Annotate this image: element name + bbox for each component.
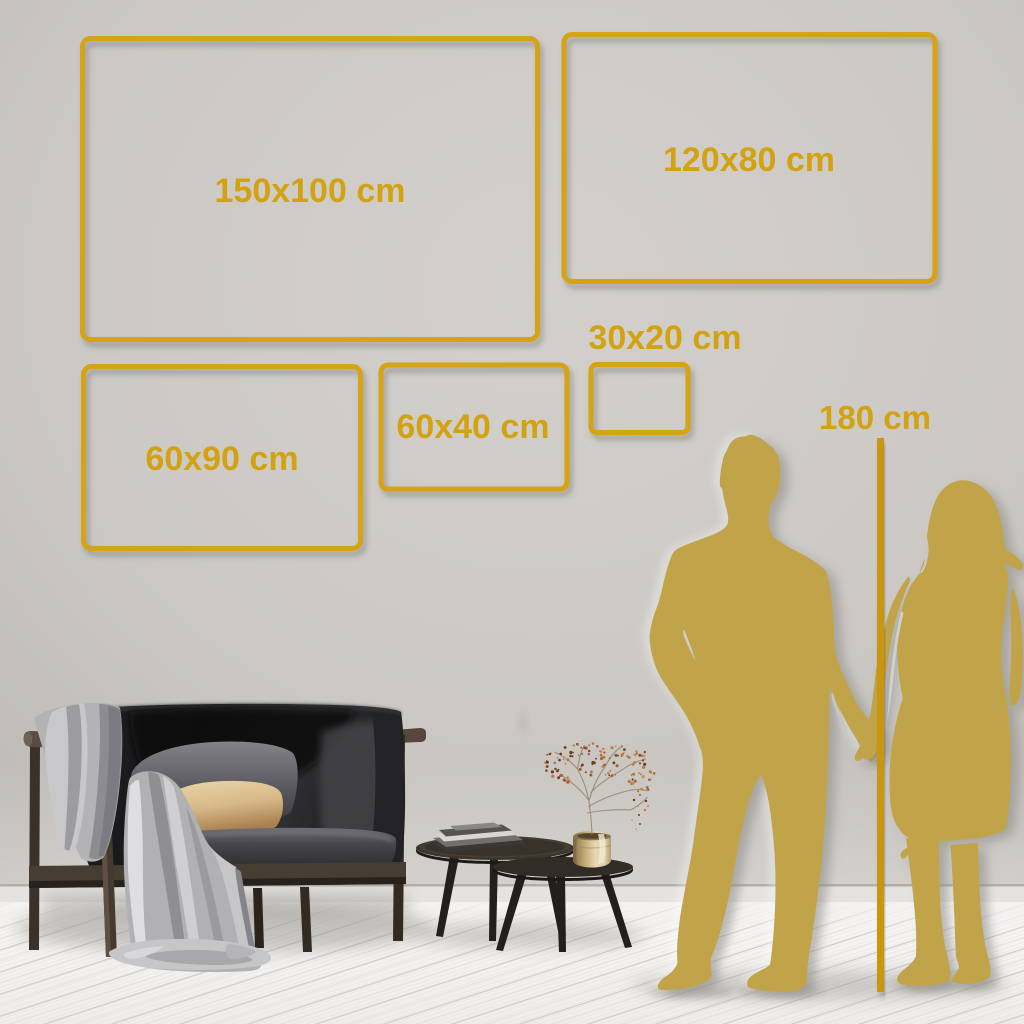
svg-text:120x80 cm: 120x80 cm <box>663 141 835 179</box>
svg-text:30x20 cm: 30x20 cm <box>588 319 741 357</box>
svg-text:150x100 cm: 150x100 cm <box>215 172 406 210</box>
svg-text:60x90 cm: 60x90 cm <box>145 440 298 478</box>
svg-text:60x40 cm: 60x40 cm <box>396 408 549 446</box>
svg-text:180 cm: 180 cm <box>819 399 931 436</box>
